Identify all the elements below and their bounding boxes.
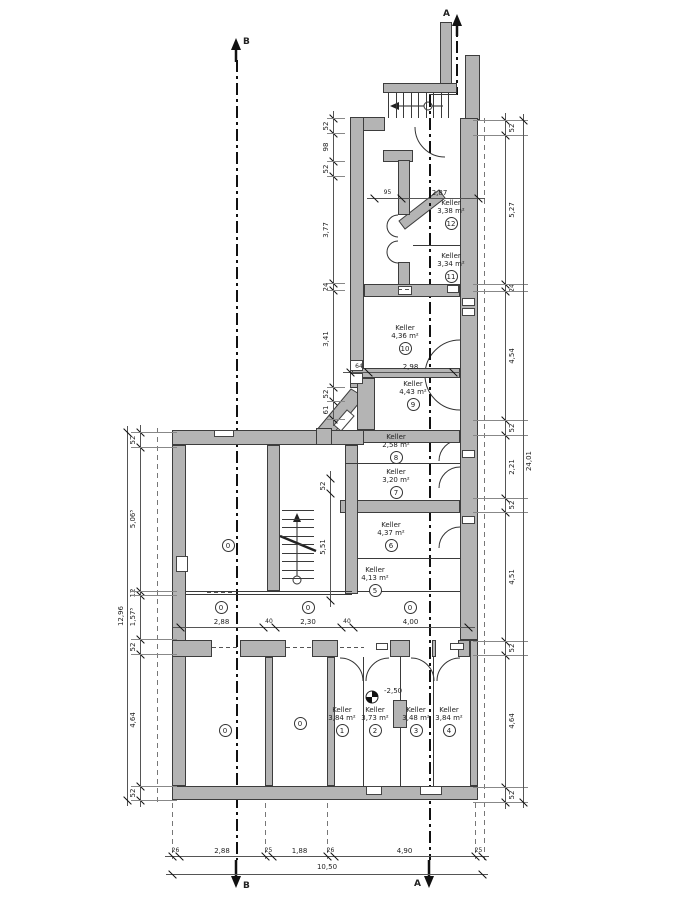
main-stair-tread [282,544,314,545]
wall-segment [357,378,375,430]
room-number-badge: 6 [385,539,398,552]
extension-line [327,118,345,119]
dimension-line [140,425,141,807]
wall-segment [267,445,280,591]
dimension-label: 52 [129,789,137,798]
dimension-label: 26 [327,847,335,855]
dimension-label: 52 [322,390,330,399]
main-stair-tread [282,561,314,562]
room-label-name: Keller [424,706,474,714]
room-label-name: Keller [366,521,416,529]
entry-stair-tread [396,93,397,118]
dimension-label: 52 [322,164,330,173]
extension-line [131,591,177,592]
dimension-label: 52 [322,121,330,130]
section-marker-b-top: B [243,38,250,46]
extension-line [473,435,528,436]
dimension-label: 1,88 [292,847,308,855]
room-label-area: 3,34 m² [426,260,476,268]
door-arc [387,215,398,237]
level-marker-icon [366,697,372,703]
entry-stair-arrowhead [390,102,399,110]
entry-stair-tread [441,93,442,118]
dimension-marker-circle: 0 [215,601,228,614]
room-number-badge: 4 [443,724,456,737]
room-number-badge: 7 [390,486,403,499]
dimension-label: 26 [172,847,180,855]
dimension-line [523,114,524,808]
extension-line [473,291,528,292]
extension-line [131,800,177,801]
level-marker-icon [372,691,378,697]
room-number-badge: 3 [410,724,423,737]
wall-opening [176,556,188,572]
drawing-line [345,463,460,464]
section-marker-a-top: A [443,10,450,18]
extension-line [327,133,345,134]
dimension-label: 2,88 [214,847,230,855]
room-label-name: Keller [371,468,421,476]
room-label-name: Keller [350,566,400,574]
room-label-name: Keller [426,252,476,260]
room-label-area: 4,37 m² [366,529,416,537]
drawing-line [413,245,460,246]
hidden-edge-line [484,118,485,860]
dimension-label: 3,77 [322,222,330,238]
hidden-edge-line [340,647,364,648]
entry-stair-tread [426,93,427,118]
extension-line [473,512,528,513]
hidden-edge-line [157,428,158,806]
main-stair-tread [282,570,314,571]
main-stair-tread [282,553,314,554]
dimension-label: 12 [129,589,137,598]
room-label-area: 3,38 m² [426,207,476,215]
dimension-label: 52 [508,644,516,653]
door-arc [387,241,398,263]
dimension-label: 5,06⁵ [129,510,137,528]
dimension-label: 2,30 [300,618,316,626]
wall-segment [398,262,410,286]
dimension-label: 40 [265,618,273,626]
dimension-label: 5,27 [508,202,516,218]
section-arrow-a-bottom [424,876,434,888]
hidden-edge-line [398,289,412,290]
extension-line [131,595,177,596]
dimension-label: 2,88 [214,618,230,626]
wall-segment [432,640,436,657]
dimension-label: 2,21 [508,459,516,475]
wall-segment [398,160,410,215]
dimension-label: 40 [343,618,351,626]
wall-opening [462,298,475,306]
wall-opening [420,786,442,795]
dimension-label: 95 [384,189,392,197]
extension-line [131,639,177,640]
extension-line [327,176,345,177]
dimension-label: 61 [322,406,330,415]
dimension-label: 98 [322,143,330,152]
dimension-label: 12,96 [117,606,125,626]
dimension-line [333,111,334,426]
dimension-label: 2,87 [432,189,448,197]
wall-opening [366,786,382,795]
dimension-label: 52 [508,501,516,510]
dimension-label: 52 [508,123,516,132]
section-marker-b-bottom: B [243,882,250,890]
dimension-label: 25 [475,847,483,855]
room-number-badge: 1 [336,724,349,737]
door-arc [439,467,460,488]
dimension-label: 4,00 [403,618,419,626]
dimension-label: 52 [319,481,327,490]
extension-line [473,641,528,642]
extension-line [473,498,528,499]
wall-segment [390,640,410,657]
hidden-edge-line [207,592,233,593]
dimension-label: 1,57⁵ [129,608,137,626]
hidden-edge-line [286,647,312,648]
wall-segment [172,430,364,445]
extension-line [473,787,528,788]
main-stair-tread [282,527,314,528]
section-marker-a-bottom: A [414,880,421,888]
extension-line [131,447,177,448]
room-number-badge: 11 [445,270,458,283]
dimension-line [173,627,475,628]
dimension-label: 4,54 [508,348,516,364]
extension-line [131,786,177,787]
entry-stair-tread [411,93,412,118]
wall-opening [462,450,475,458]
extension-line [473,120,528,121]
dimension-line [505,113,506,809]
room-label-area: 3,20 m² [371,476,421,484]
extension-line [327,290,345,291]
section-arrow-b-bottom [231,876,241,888]
room-marker-zero: 0 [294,717,307,730]
wall-segment [312,640,338,657]
room-number-badge: 8 [390,451,403,464]
room-number-badge: 2 [369,724,382,737]
wall-segment [440,22,452,86]
dimension-marker-circle: 0 [404,601,417,614]
room-marker-zero: 0 [222,539,235,552]
room-label-name: Keller [426,199,476,207]
extension-line [473,284,528,285]
dimension-label: 52 [129,642,137,651]
room-label-name: Keller [380,324,430,332]
dimension-label: 24,01 [525,451,533,471]
dimension-label: 2,98 [403,363,419,371]
room-number-badge: 12 [445,217,458,230]
drawing-line [400,728,401,786]
extension-line [473,655,528,656]
wall-opening [398,286,412,295]
wall-segment [383,83,457,93]
section-arrow-b-top [231,38,241,50]
door-arc [439,527,460,548]
wall-opening [214,430,234,437]
wall-segment [240,640,286,657]
drawing-line [186,594,352,595]
dimension-label: 52 [508,790,516,799]
main-stair-arrowhead [293,513,301,522]
extension-line [327,401,345,402]
room-number-badge: 5 [369,584,382,597]
dimension-label: 4,64 [508,713,516,729]
dimension-line [127,426,128,806]
entry-stair-tread [388,93,389,118]
main-stair-tread [282,536,314,537]
wall-opening [447,285,459,293]
wall-segment [316,428,332,445]
wall-opening [462,516,475,524]
extension-line [131,432,177,433]
room-label-area: 2,58 m² [371,441,421,449]
dimension-line [166,874,488,875]
main-stair-tread [282,578,314,579]
wall-segment [172,640,212,657]
dimension-label: 3,41 [322,331,330,347]
room-marker-zero: 0 [219,724,232,737]
dimension-label: 4,90 [397,847,413,855]
room-number-badge: 9 [407,398,420,411]
door-arc [437,658,460,681]
main-stair-tread [282,519,314,520]
door-arc [366,658,389,681]
dimension-label: 25 [265,847,273,855]
dimension-label: 5,51 [319,539,327,555]
extension-line [327,387,345,388]
section-line-b [236,60,238,860]
dimension-line [343,372,460,373]
dimension-marker-circle: 0 [302,601,315,614]
room-label-area: 4,43 m² [388,388,438,396]
floorplan-canvas: B B A A -2,50 525,06⁵121,57⁵524,645212,9… [0,0,691,900]
wall-segment [364,284,460,297]
room-label-name: Keller [388,380,438,388]
dimension-line [330,471,331,607]
room-label-area: 4,13 m² [350,574,400,582]
entry-stair-tread [418,93,419,118]
wall-segment [172,445,186,786]
room-label-area: 4,36 m² [380,332,430,340]
drawing-line [400,657,401,700]
door-arc [439,440,460,461]
room-number-badge: 10 [399,342,412,355]
entry-stair-tread [448,93,449,118]
main-stair-tread [282,510,314,511]
extension-line [473,420,528,421]
wall-segment [350,117,364,388]
drawing-line [358,558,460,559]
dimension-label: 64 [355,363,363,371]
extension-line [473,135,528,136]
wall-opening [376,643,388,650]
wall-opening [450,643,464,650]
extension-line [131,654,177,655]
dimension-label: 10,50 [317,863,337,871]
hidden-edge-line [212,647,240,648]
wall-segment [465,55,480,120]
wall-segment [265,657,273,786]
extension-line [327,419,345,420]
extension-line [327,283,345,284]
extension-line [473,802,528,803]
room-label-name: Keller [371,433,421,441]
entry-stair-tread [403,93,404,118]
dimension-label: 4,51 [508,569,516,585]
wall-segment [340,500,460,513]
room-label-area: 3,84 m² [424,714,474,722]
extension-line [327,161,345,162]
door-arc [340,658,363,681]
dimension-label: 4,64 [129,712,137,728]
dimension-label: 52 [508,423,516,432]
entry-stair-tread [433,93,434,118]
wall-opening [462,308,475,316]
